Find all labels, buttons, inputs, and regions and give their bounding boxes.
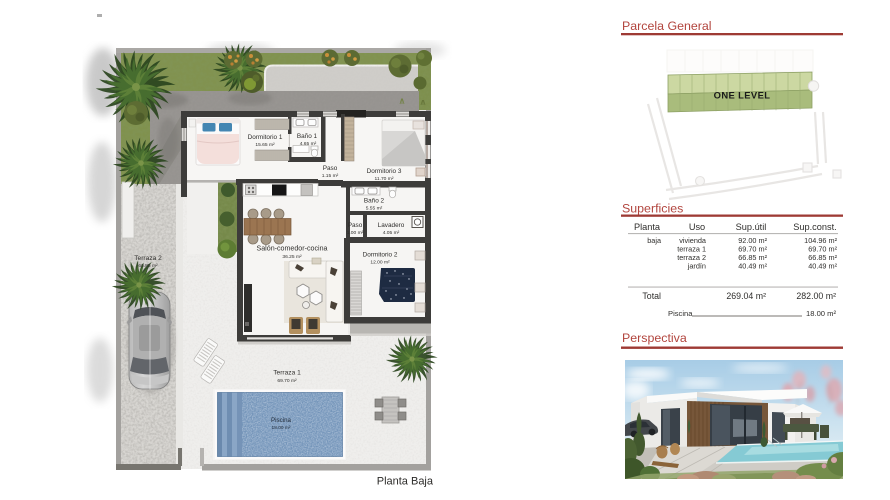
svg-text:15.65 m²: 15.65 m² xyxy=(255,142,275,148)
svg-text:11.70 m²: 11.70 m² xyxy=(375,176,394,182)
svg-text:40.49 m²: 40.49 m² xyxy=(808,262,837,271)
svg-text:Total: Total xyxy=(642,291,661,301)
svg-text:Terraza 1: Terraza 1 xyxy=(273,370,301,377)
svg-text:Baño 1: Baño 1 xyxy=(297,133,318,140)
svg-text:1.00 m²: 1.00 m² xyxy=(347,230,364,236)
svg-text:69.70 m²: 69.70 m² xyxy=(277,378,297,384)
svg-text:60.85 m²: 60.85 m² xyxy=(138,263,158,269)
svg-text:Terraza 2: Terraza 2 xyxy=(134,255,162,262)
svg-text:18.00 m²: 18.00 m² xyxy=(806,309,836,318)
svg-text:baja: baja xyxy=(647,236,662,245)
svg-text:Sup.const.: Sup.const. xyxy=(793,222,836,232)
svg-text:Lavadero: Lavadero xyxy=(378,222,405,229)
svg-text:1.15 m²: 1.15 m² xyxy=(322,173,339,179)
svg-text:12.00 m²: 12.00 m² xyxy=(370,260,390,266)
svg-text:Paso: Paso xyxy=(323,165,338,172)
svg-text:jardín: jardín xyxy=(687,262,706,271)
svg-text:36.25 m²: 36.25 m² xyxy=(282,254,302,260)
svg-text:Uso: Uso xyxy=(689,222,705,232)
svg-text:Parcela General: Parcela General xyxy=(622,19,712,33)
svg-text:Dormitorio 1: Dormitorio 1 xyxy=(248,134,283,141)
svg-text:18.00 m²: 18.00 m² xyxy=(272,425,291,431)
svg-text:282.00 m²: 282.00 m² xyxy=(796,291,836,301)
svg-text:5.55 m²: 5.55 m² xyxy=(366,206,383,212)
svg-text:Planta Baja: Planta Baja xyxy=(377,476,434,488)
svg-text:4.05 m²: 4.05 m² xyxy=(383,230,400,236)
svg-text:Planta: Planta xyxy=(634,222,661,232)
svg-text:Dormitorio 2: Dormitorio 2 xyxy=(363,252,398,259)
svg-text:ONE LEVEL: ONE LEVEL xyxy=(714,90,771,101)
svg-text:Superficies: Superficies xyxy=(622,202,683,216)
svg-text:Baño 2: Baño 2 xyxy=(364,198,385,205)
svg-text:Sup.útil: Sup.útil xyxy=(736,222,767,232)
svg-text:Salón-comedor-cocina: Salón-comedor-cocina xyxy=(257,245,328,253)
svg-text:40.49 m²: 40.49 m² xyxy=(738,262,767,271)
svg-text:4.65 m²: 4.65 m² xyxy=(300,141,317,147)
svg-text:Paso: Paso xyxy=(348,222,363,229)
svg-text:Piscina: Piscina xyxy=(271,417,292,424)
svg-text:Piscina: Piscina xyxy=(668,309,693,318)
svg-text:Dormitorio 3: Dormitorio 3 xyxy=(367,168,402,175)
svg-text:Perspectiva: Perspectiva xyxy=(622,331,687,345)
svg-text:269.04 m²: 269.04 m² xyxy=(726,291,766,301)
